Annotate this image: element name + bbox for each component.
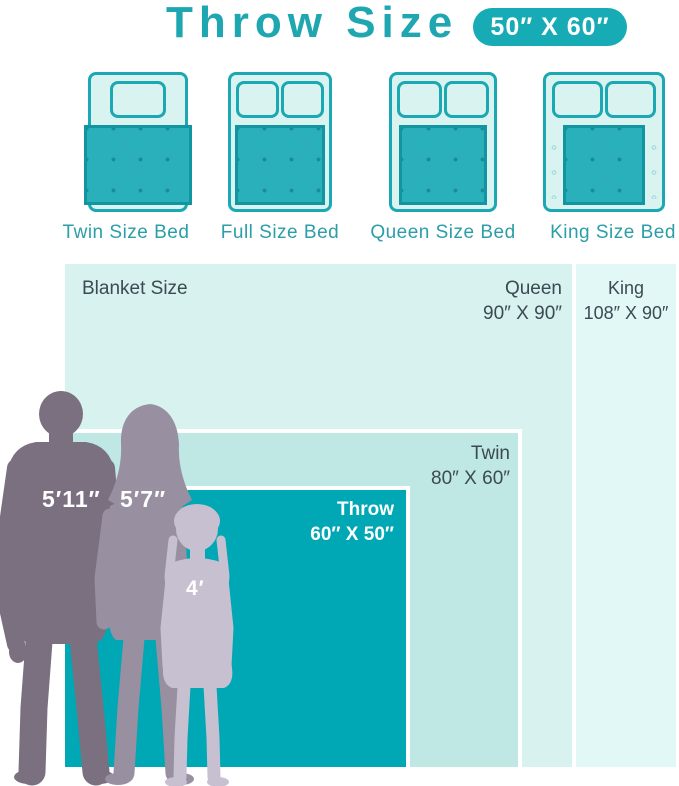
bed-icon (543, 72, 665, 212)
queen-name: Queen (483, 276, 562, 301)
bed-icon (228, 72, 332, 212)
throw-size-label: Throw 60″ X 50″ (310, 497, 394, 547)
throw-dimensions: 60″ X 50″ (310, 522, 394, 547)
full-bed-figure (228, 72, 332, 212)
bed-icon (389, 72, 497, 212)
king-dimensions: 108″ X 90″ (576, 301, 676, 326)
king-bed-label: King Size Bed (533, 222, 679, 244)
pillow-icon (397, 81, 442, 118)
queen-bed-label: Queen Size Bed (363, 222, 523, 244)
people-silhouettes (0, 378, 250, 786)
twin-bed-label: Twin Size Bed (46, 222, 206, 244)
page-title: Throw Size (166, 0, 458, 48)
pillow-icon (444, 81, 489, 118)
full-bed-label: Full Size Bed (200, 222, 360, 244)
blanket-icon (399, 125, 487, 205)
king-bed-figure (543, 72, 665, 212)
queen-size-label: Queen 90″ X 90″ (483, 276, 562, 326)
pillow-icon (236, 81, 279, 118)
pillow-icon (552, 81, 603, 118)
infographic-canvas: Throw Size 50″ X 60″ Twin Size Bed Full … (0, 0, 679, 786)
king-blanket-rect (576, 264, 676, 767)
woman-height-label: 5′7″ (120, 486, 166, 513)
queen-bed-figure (389, 72, 497, 212)
blanket-icon (235, 125, 325, 205)
throw-size-badge: 50″ X 60″ (473, 8, 627, 46)
bed-icon (88, 72, 188, 212)
blanket-icon (563, 125, 645, 205)
pillow-icon (605, 81, 656, 118)
pillow-icon (110, 81, 166, 118)
chart-title: Blanket Size (82, 276, 188, 301)
blanket-icon (84, 125, 192, 205)
twin-dimensions: 80″ X 60″ (431, 466, 510, 491)
pillow-icon (281, 81, 324, 118)
mattress-dots-icon (649, 131, 659, 199)
king-size-label: King 108″ X 90″ (576, 276, 676, 326)
girl-height-label: 4′ (186, 577, 205, 601)
man-height-label: 5′11″ (42, 486, 101, 513)
queen-dimensions: 90″ X 90″ (483, 301, 562, 326)
king-name: King (576, 276, 676, 301)
throw-name: Throw (310, 497, 394, 522)
twin-size-label: Twin 80″ X 60″ (431, 441, 510, 491)
twin-bed-figure (88, 72, 188, 212)
mattress-dots-icon (549, 131, 559, 199)
twin-name: Twin (431, 441, 510, 466)
